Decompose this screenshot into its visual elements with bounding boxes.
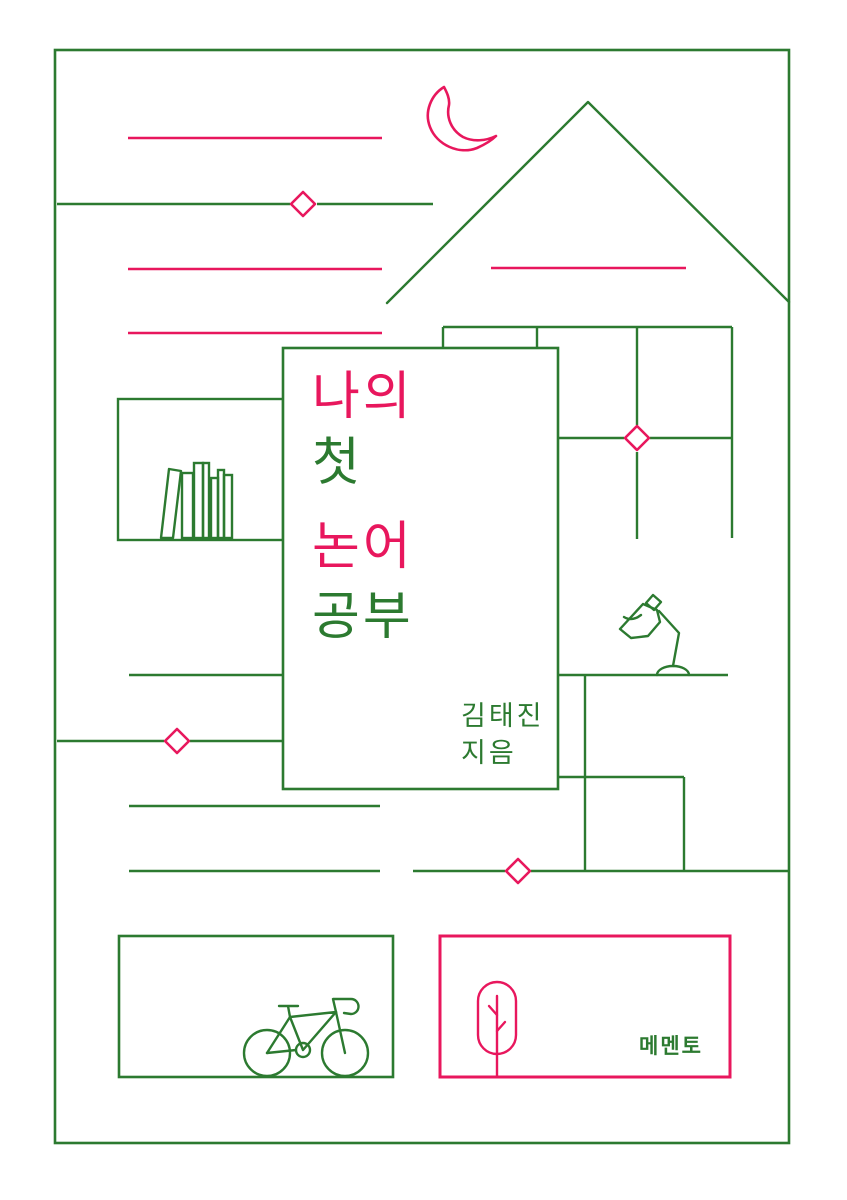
cover-line-art (0, 0, 847, 1200)
floor-rule-with-diamond (413, 859, 789, 883)
bookshelf-icon (118, 399, 283, 540)
pink-rules-top (128, 138, 382, 333)
title-line-4: 공부 (312, 591, 414, 643)
title-line-2: 첫 (312, 437, 363, 489)
title-line-1: 나의 (312, 371, 414, 423)
green-rule-with-diamond-top (57, 192, 433, 216)
author-role: 지음 (461, 740, 517, 767)
crescent-moon-icon (428, 87, 496, 150)
diamond-icon (291, 192, 315, 216)
diamond-icon (625, 426, 649, 450)
book-cover: 나의 첫 논어 공부 김태진 지음 메멘토 (0, 0, 847, 1200)
bedside-table (545, 675, 684, 871)
author-name: 김태진 (461, 703, 545, 730)
title-line-3: 논어 (312, 521, 414, 573)
diamond-icon (506, 859, 530, 883)
bicycle-box (119, 936, 393, 1077)
bicycle-icon (244, 999, 368, 1076)
green-rules-lower-left (129, 806, 380, 871)
diamond-icon (165, 729, 189, 753)
green-rule-with-diamond-mid (57, 729, 290, 753)
publisher-logo: 메멘토 (639, 1036, 703, 1057)
desk-lamp-icon (620, 595, 689, 675)
tree-icon (478, 982, 516, 1077)
house-roof-outline (387, 102, 789, 303)
